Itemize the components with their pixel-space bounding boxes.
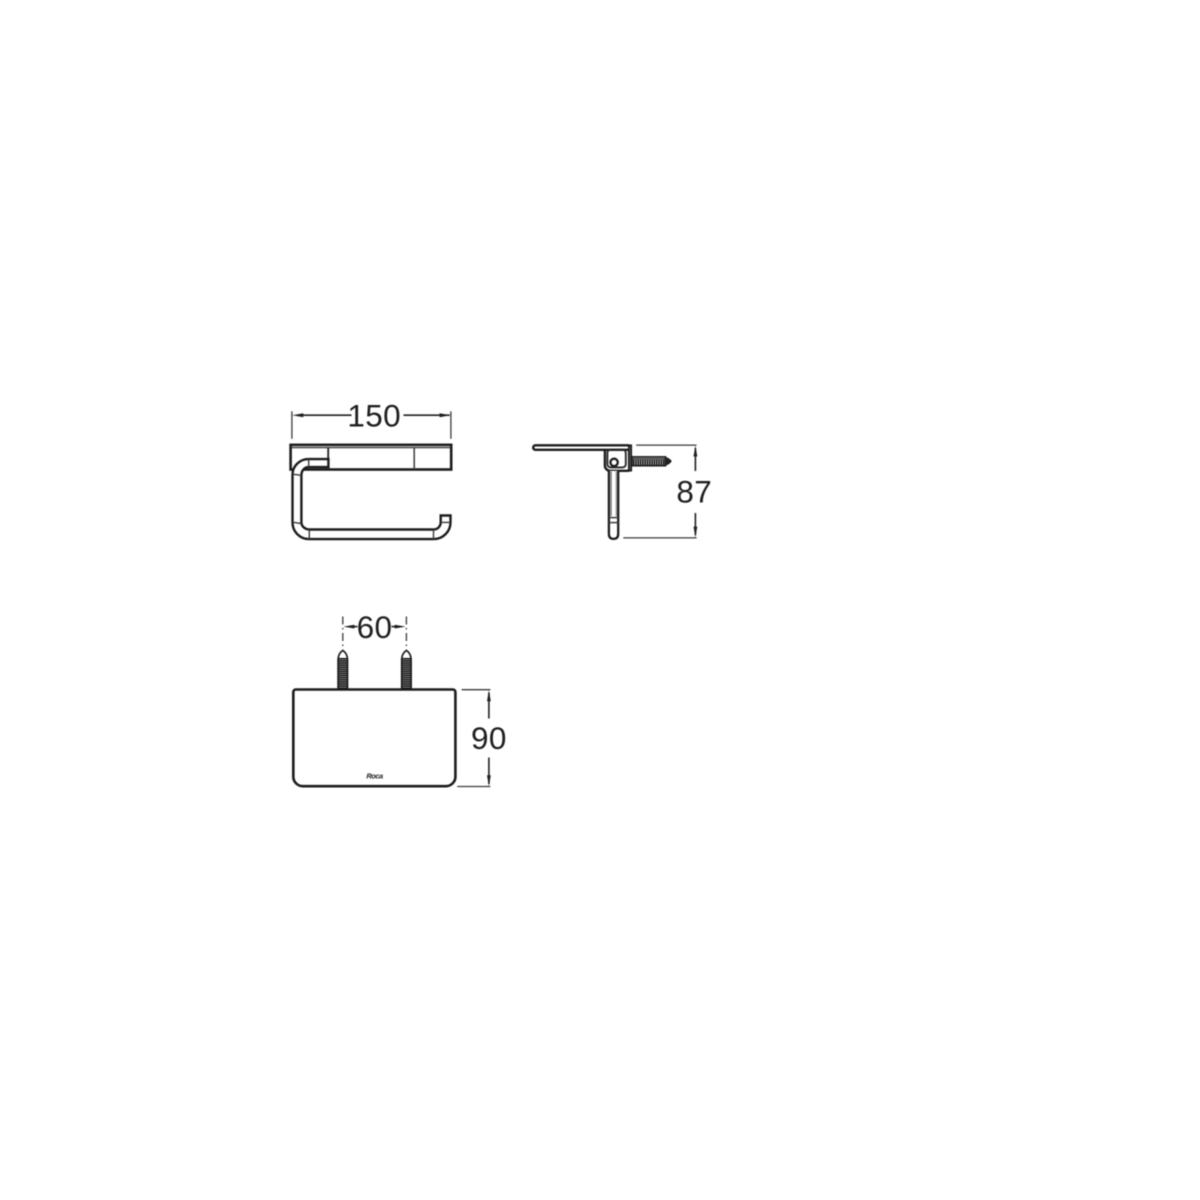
svg-text:90: 90 [471,720,507,756]
svg-text:60: 60 [357,609,393,645]
svg-text:87: 87 [676,473,712,509]
svg-text:150: 150 [347,397,401,433]
svg-text:Roca: Roca [366,772,383,781]
